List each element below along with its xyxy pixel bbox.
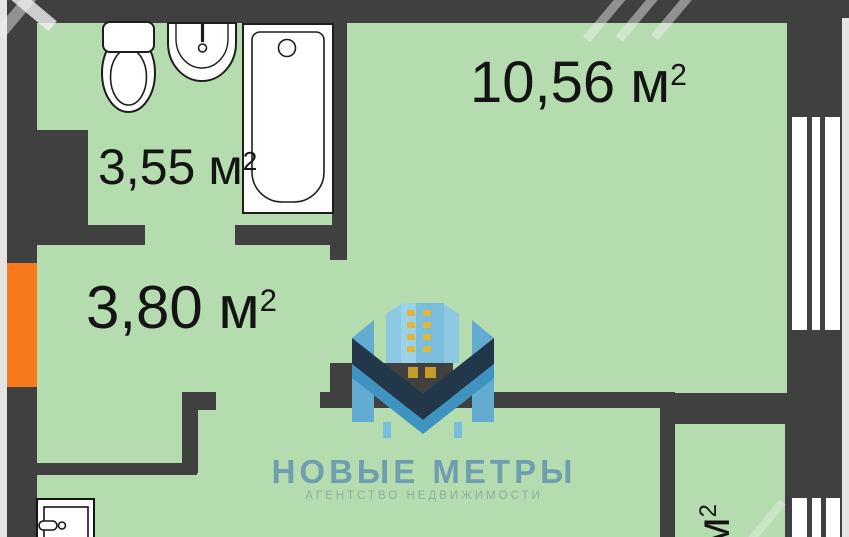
- area-sup: 2: [243, 146, 257, 176]
- area-value: 10,56: [470, 50, 615, 115]
- area-label-hallway: 3,80м2: [86, 278, 277, 338]
- logo-title: НОВЫЕ МЕТРЫ: [264, 453, 584, 491]
- area-sup: 2: [260, 283, 277, 318]
- area-label-main-room: 10,56м2: [470, 54, 687, 112]
- area-unit: м: [687, 517, 739, 537]
- area-unit: м: [208, 139, 242, 195]
- area-unit: м: [630, 50, 670, 115]
- area-value: 3,55: [98, 139, 195, 195]
- floorplan-canvas: НОВЫЕ МЕТРЫ АГЕНТСТВО НЕДВИЖИМОСТИ 3,55м…: [0, 0, 849, 537]
- area-value: 3,80: [86, 274, 203, 341]
- logo-subtitle: АГЕНТСТВО НЕДВИЖИМОСТИ: [294, 490, 554, 502]
- area-sup: 2: [695, 504, 722, 517]
- area-label-bathroom: 3,55м2: [98, 142, 257, 192]
- area-label-small-room: м2: [690, 504, 736, 537]
- area-unit: м: [218, 274, 259, 341]
- area-sup: 2: [670, 59, 687, 92]
